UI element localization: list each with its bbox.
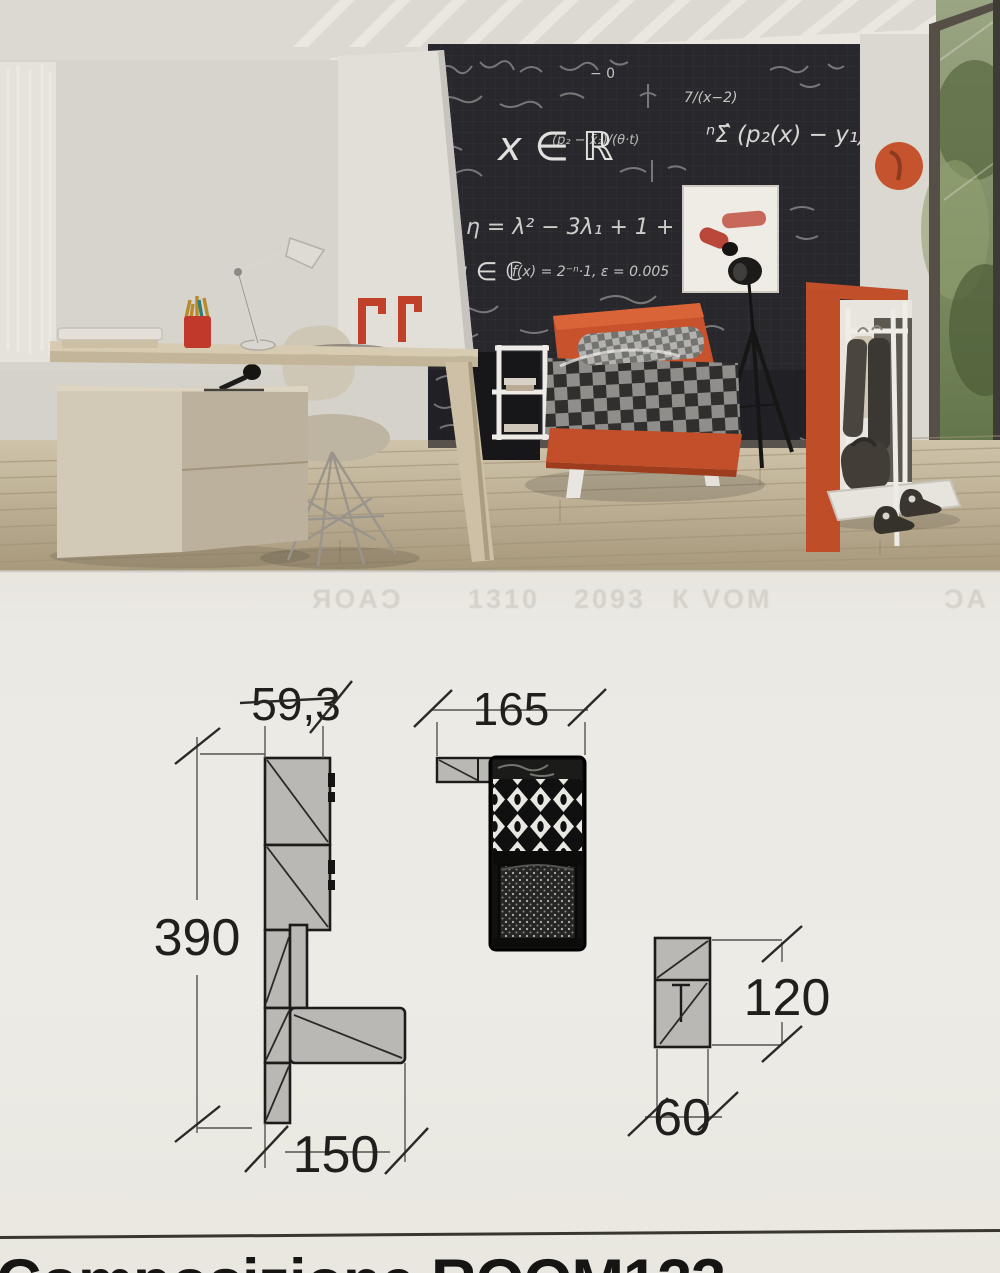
curtain-texture [0,62,56,362]
wall-clock [875,142,923,190]
technical-plan-drawing: 59,3 390 150 [0,570,1000,1273]
dimension-label-unit-width: 60 [653,1089,711,1147]
catalog-lower-section: ЯOΑϽ 1310 2093 К VOM ϽΑ [0,570,1000,1273]
dim-390: 390 [154,728,252,1142]
dimension-label-left-height: 390 [154,909,241,967]
plan-left-unit [265,758,405,1123]
dim-165: 165 [414,683,606,756]
plan-bedside-unit [655,938,710,1047]
dim-120: 120 [712,926,830,1062]
sideboard-drawers [57,385,308,558]
dim-59-3: 59,3 [200,678,352,758]
backpack [841,440,890,492]
chalk-formula: η = λ² − 3λ₁ + 1 + 0 [466,215,695,240]
desk-trays [58,328,162,348]
dimension-label-left-bottom-width: 150 [293,1126,380,1184]
chalk-formula: − 0 [590,66,615,82]
catalog-page: x ∈ ℝ ⁿΣ̂ (p₂(x) − y₁)² η = λ² − 3λ₁ + 1… [0,0,1000,1273]
dimension-label-bed-width: 165 [473,683,550,735]
composition-title: Composizione ROOM123 [0,1246,896,1273]
plan-bed [437,757,585,950]
chalk-formula: (p₂ − x̄₂)/(θ·t) [552,133,639,148]
room-photo: x ∈ ℝ ⁿΣ̂ (p₂(x) − y₁)² η = λ² − 3λ₁ + 1… [0,0,1000,570]
dim-60: 60 [628,1049,738,1147]
dimension-label-unit-height: 120 [744,969,831,1027]
chalk-formula: f(x) = 2⁻ⁿ·1, ε = 0.005 [512,264,669,280]
chalk-formula: ⁿΣ̂ (p₂(x) − y₁)² [706,122,876,148]
chalk-formula: 7/(x−2) [684,90,737,106]
dimension-label-left-width: 59,3 [251,678,341,730]
